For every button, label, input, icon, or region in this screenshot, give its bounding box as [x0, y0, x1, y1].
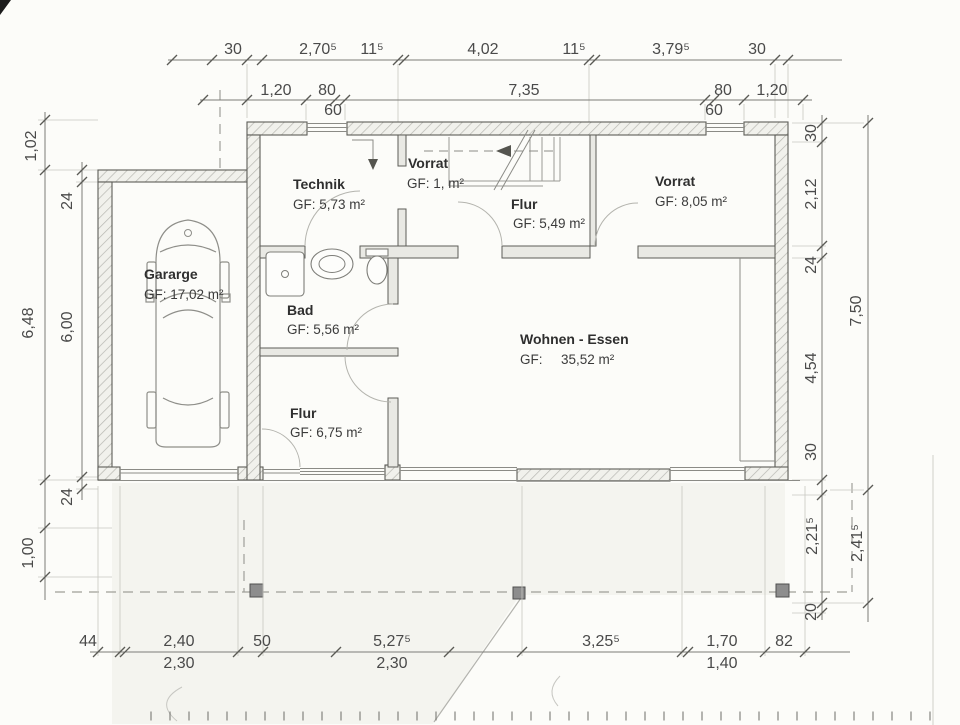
garage-top-wall — [98, 170, 247, 182]
dimension-label: 2,30 — [163, 655, 194, 672]
room-area-technik: GF: 5,73 m² — [293, 197, 366, 212]
dimension-label: 11⁵ — [360, 41, 383, 58]
room-name-flur-lower: Flur — [290, 405, 317, 421]
right-wall — [775, 135, 788, 480]
dimension-label: 3,79⁵ — [652, 41, 690, 58]
toilet-tank — [366, 249, 388, 256]
room-name-bad: Bad — [287, 302, 313, 318]
dimension-label: 80 — [318, 82, 336, 99]
room-name-flur-top: Flur — [511, 196, 538, 212]
dimension-label: 44 — [79, 633, 97, 650]
dimension-label: 24 — [59, 488, 76, 506]
dimension-label: 4,02 — [467, 41, 498, 58]
dimension-label: 7,50 — [848, 295, 865, 326]
dimension-label: 30 — [803, 124, 820, 142]
floor-plan-drawing: 30 2,70⁵ 11⁵ 4,02 11⁵ 3,79⁵ 30 1,20 80 7… — [0, 0, 960, 725]
dimension-label: 50 — [253, 633, 271, 650]
room-area-garage: GF: 17,02 m² — [144, 287, 224, 302]
dimension-label: 1,70 — [706, 633, 737, 650]
dimension-label: 2,21⁵ — [804, 517, 821, 555]
dimension-label: 5,27⁵ — [373, 633, 411, 650]
dimension-label: 80 — [714, 82, 732, 99]
dimension-label: 2,40 — [163, 633, 194, 650]
shower-tray — [266, 252, 304, 296]
room-area-value-wohnen-essen: 35,52 m² — [561, 352, 615, 367]
dimension-label: 2,70⁵ — [299, 41, 337, 58]
dimension-label: 1,20 — [756, 82, 787, 99]
dims-top-row1: 30 2,70⁵ 11⁵ 4,02 11⁵ 3,79⁵ 30 — [224, 41, 766, 58]
dimension-label: 7,35 — [508, 82, 539, 99]
room-name-garage: Gararge — [144, 266, 198, 282]
dimension-label: 4,54 — [803, 352, 820, 383]
dimension-label: 6,00 — [59, 311, 76, 342]
floor-plan-page: 30 2,70⁵ 11⁵ 4,02 11⁵ 3,79⁵ 30 1,20 80 7… — [0, 0, 960, 725]
dimension-label: 3,25⁵ — [582, 633, 620, 650]
room-name-vorrat-small: Vorrat — [408, 155, 449, 171]
dimension-label: 2,41⁵ — [849, 524, 866, 562]
dimension-label: 24 — [803, 256, 820, 274]
toilet-bowl — [367, 256, 387, 284]
dimension-label: 1,00 — [20, 537, 37, 568]
dimension-label: 1,02 — [23, 130, 40, 161]
room-name-technik: Technik — [293, 176, 345, 192]
garage-left-wall — [98, 182, 112, 480]
room-area-label-wohnen-essen: GF: — [520, 352, 543, 367]
left-wall — [247, 135, 260, 480]
room-name-wohnen-essen: Wohnen - Essen — [520, 331, 629, 347]
room-area-vorrat-right: GF: 8,05 m² — [655, 194, 728, 209]
sink — [311, 249, 353, 279]
dimension-label: 30 — [224, 41, 242, 58]
dimension-label: 82 — [775, 633, 793, 650]
bottom-wall — [517, 469, 670, 481]
dimension-label: 30 — [803, 443, 820, 461]
dimension-label: 60 — [705, 102, 723, 119]
room-area-flur-lower: GF: 6,75 m² — [290, 425, 363, 440]
garage-door-pier — [98, 467, 120, 480]
dimension-label: 24 — [59, 192, 76, 210]
terrace-post — [513, 587, 525, 599]
dimension-label: 2,30 — [376, 655, 407, 672]
dimension-label: 2,12 — [803, 178, 820, 209]
dimension-label: 1,40 — [706, 655, 737, 672]
dimension-label: 6,48 — [20, 307, 37, 338]
dimension-label: 30 — [748, 41, 766, 58]
dimension-label: 20 — [803, 603, 820, 621]
room-name-vorrat-right: Vorrat — [655, 173, 696, 189]
dimension-label: 11⁵ — [562, 41, 585, 58]
dimension-label: 60 — [324, 102, 342, 119]
room-area-bad: GF: 5,56 m² — [287, 322, 360, 337]
room-area-flur-top: GF: 5,49 m² — [513, 216, 586, 231]
room-area-vorrat-small: GF: 1, m² — [407, 176, 465, 191]
dimension-label: 1,20 — [260, 82, 291, 99]
terrace-post — [776, 584, 789, 597]
terrace-post — [250, 584, 263, 597]
